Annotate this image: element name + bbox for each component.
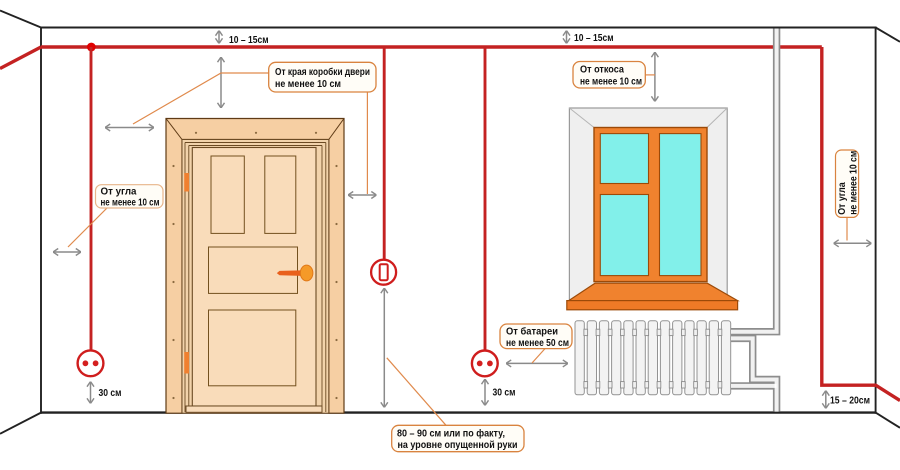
svg-text:не менее 50 см: не менее 50 см	[506, 338, 569, 349]
svg-text:От откоса: От откоса	[580, 65, 624, 76]
svg-text:От батареи: От батареи	[506, 325, 558, 337]
svg-text:не менее 10 см: не менее 10 см	[275, 79, 341, 90]
svg-text:на уровне опущенной руки: на уровне опущенной руки	[398, 440, 518, 451]
svg-text:30 см: 30 см	[493, 386, 516, 398]
svg-text:10 – 15см: 10 – 15см	[574, 32, 614, 44]
svg-text:80 – 90 см или по факту,: 80 – 90 см или по факту,	[397, 428, 505, 440]
svg-text:От угла: От угла	[101, 187, 137, 198]
svg-text:От угла: От угла	[837, 182, 848, 215]
svg-text:не менее 10 см: не менее 10 см	[849, 151, 860, 215]
svg-text:10 – 15см: 10 – 15см	[229, 34, 269, 46]
svg-text:30 см: 30 см	[99, 387, 122, 399]
svg-text:От края коробки двери: От края коробки двери	[275, 66, 370, 78]
svg-text:15 – 20см: 15 – 20см	[830, 394, 870, 406]
svg-text:не менее 10 см: не менее 10 см	[101, 197, 160, 208]
svg-text:не менее 10 см: не менее 10 см	[580, 76, 642, 87]
